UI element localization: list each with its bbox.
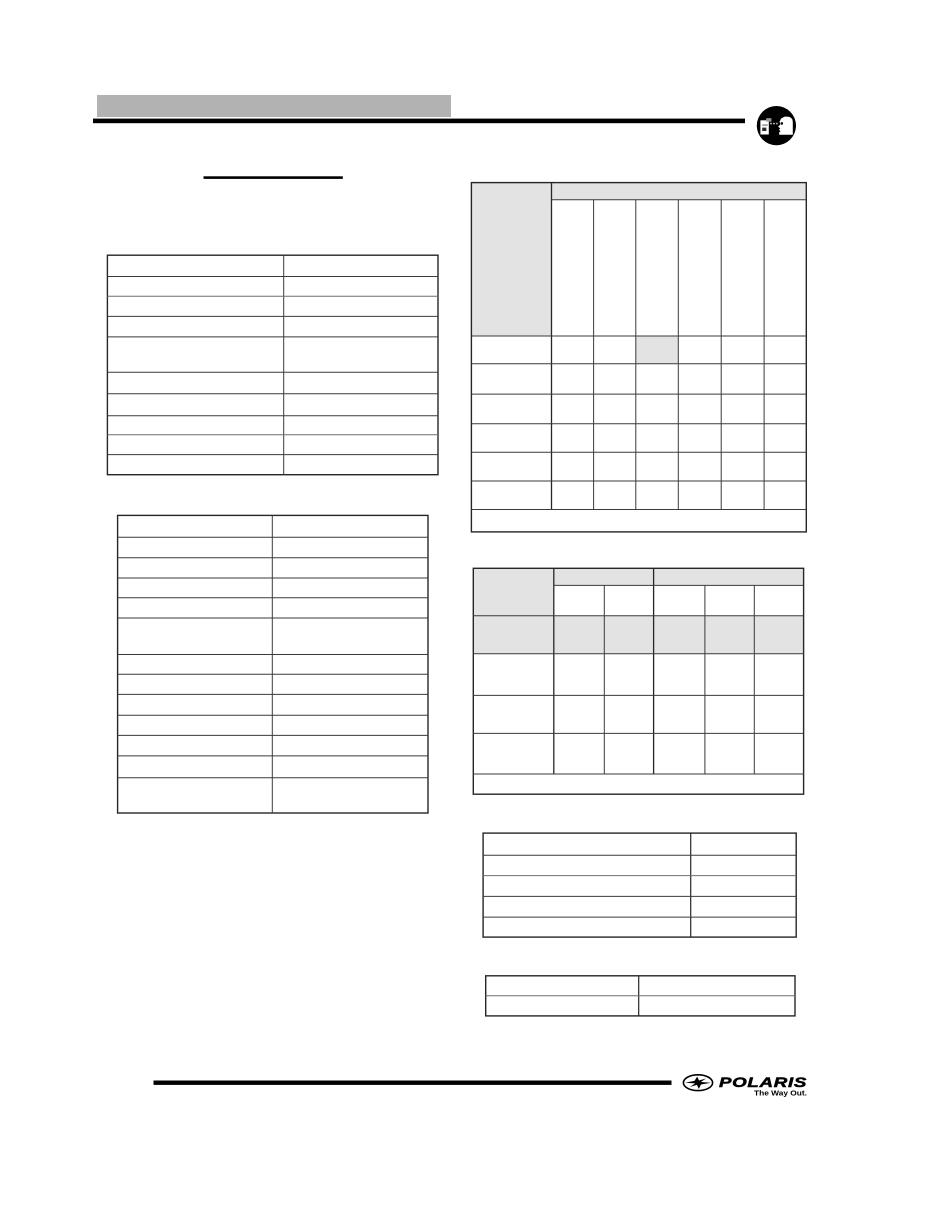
svg-text:The Way Out.: The Way Out. bbox=[754, 1089, 807, 1098]
